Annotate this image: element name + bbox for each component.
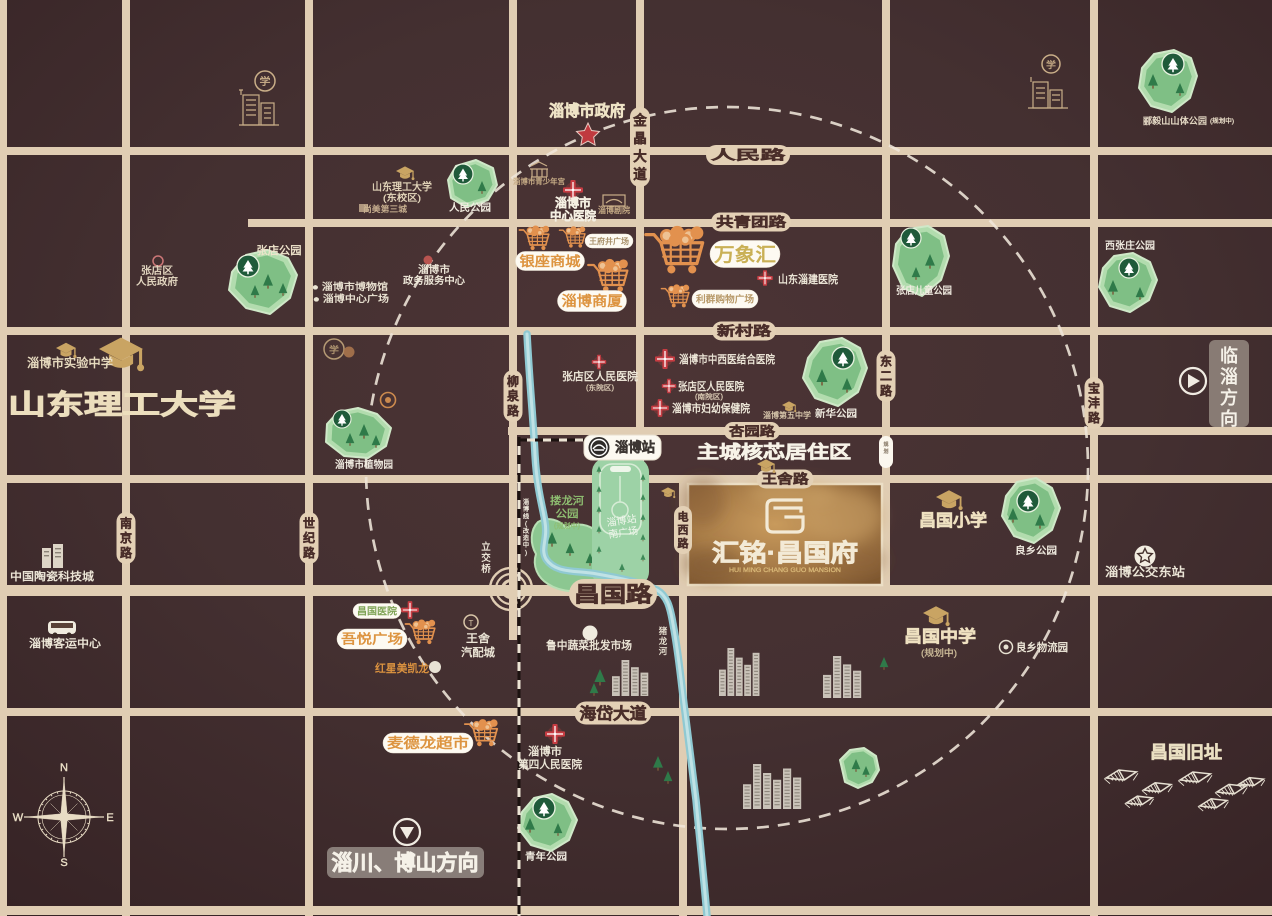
svg-text:新华公园: 新华公园 bbox=[815, 407, 857, 420]
svg-text:昌国旧址: 昌国旧址 bbox=[1150, 743, 1222, 762]
svg-text:王府井广场: 王府井广场 bbox=[589, 236, 629, 246]
svg-text:淄博市青少年宫: 淄博市青少年宫 bbox=[513, 176, 565, 186]
svg-text:公园: 公园 bbox=[556, 508, 579, 520]
svg-text:东二路: 东二路 bbox=[880, 353, 893, 397]
svg-text:中心医院: 中心医院 bbox=[550, 208, 596, 223]
svg-text:HUI MING CHANG GUO MANSION: HUI MING CHANG GUO MANSION bbox=[729, 567, 841, 574]
svg-text:人民路: 人民路 bbox=[711, 148, 787, 163]
svg-text:昌国中学: 昌国中学 bbox=[904, 626, 976, 646]
svg-text:尚美第三城: 尚美第三城 bbox=[363, 204, 408, 214]
svg-text:山东理工大学: 山东理工大学 bbox=[8, 389, 236, 420]
svg-text:张店区人民医院: 张店区人民医院 bbox=[678, 379, 744, 393]
svg-text:张店儿童公园: 张店儿童公园 bbox=[896, 284, 952, 297]
svg-text:鲁中蔬菜批发市场: 鲁中蔬菜批发市场 bbox=[546, 638, 632, 652]
svg-text:学: 学 bbox=[260, 75, 271, 88]
svg-text:(东院区): (东院区) bbox=[586, 383, 614, 392]
svg-text:麦德龙超市: 麦德龙超市 bbox=[387, 735, 469, 751]
svg-text:人民政府: 人民政府 bbox=[136, 275, 178, 288]
svg-text:万象汇: 万象汇 bbox=[713, 243, 776, 266]
svg-text:第四人民医院: 第四人民医院 bbox=[518, 757, 582, 771]
svg-text:共青团路: 共青团路 bbox=[716, 215, 787, 230]
svg-text:人民公园: 人民公园 bbox=[449, 202, 491, 214]
svg-text:南京路: 南京路 bbox=[120, 515, 133, 559]
svg-text:柳泉路: 柳泉路 bbox=[507, 373, 520, 417]
svg-text:● 淄博中心广场: ● 淄博中心广场 bbox=[313, 293, 389, 305]
svg-text:淄博站: 淄博站 bbox=[615, 439, 655, 455]
svg-text:吾悦广场: 吾悦广场 bbox=[341, 632, 403, 647]
svg-text:(南院区): (南院区) bbox=[695, 392, 723, 401]
svg-text:淄博市实验中学: 淄博市实验中学 bbox=[27, 355, 113, 370]
svg-text:淄博商厦: 淄博商厦 bbox=[562, 293, 624, 309]
svg-text:学: 学 bbox=[1046, 59, 1056, 70]
svg-text:电西路: 电西路 bbox=[678, 509, 690, 550]
svg-text:张店区人民医院: 张店区人民医院 bbox=[562, 369, 638, 383]
svg-text:良乡物流园: 良乡物流园 bbox=[1016, 640, 1068, 654]
svg-text:淄博市: 淄博市 bbox=[528, 744, 562, 758]
svg-text:N: N bbox=[60, 762, 68, 774]
svg-text:淄博公交东站: 淄博公交东站 bbox=[1105, 564, 1185, 579]
svg-text:(东校区): (东校区) bbox=[383, 192, 421, 204]
svg-text:昌国小学: 昌国小学 bbox=[919, 510, 987, 530]
svg-text:淄博市植物园: 淄博市植物园 bbox=[335, 458, 393, 471]
svg-text:T: T bbox=[469, 619, 474, 628]
svg-text:宝沣路: 宝沣路 bbox=[1088, 380, 1101, 424]
svg-text:淄博剧院: 淄博剧院 bbox=[598, 205, 630, 215]
svg-text:红星美凯龙: 红星美凯龙 bbox=[375, 662, 429, 675]
svg-text:淄博市政府: 淄博市政府 bbox=[549, 101, 625, 120]
svg-text:淄博市妇幼保健院: 淄博市妇幼保健院 bbox=[672, 401, 750, 415]
svg-text:● 淄博市博物馆: ● 淄博市博物馆 bbox=[312, 281, 388, 293]
svg-text:淄博市: 淄博市 bbox=[555, 195, 591, 210]
svg-text:搂龙河: 搂龙河 bbox=[550, 494, 585, 507]
svg-text:西张庄公园: 西张庄公园 bbox=[1105, 239, 1155, 252]
svg-text:淄川、博山方向: 淄川、博山方向 bbox=[332, 851, 479, 875]
svg-text:E: E bbox=[106, 812, 113, 824]
svg-text:利群购物广场: 利群购物广场 bbox=[695, 293, 755, 305]
svg-text:汇铭·昌国府: 汇铭·昌国府 bbox=[712, 539, 858, 567]
svg-text:中国陶瓷科技城: 中国陶瓷科技城 bbox=[10, 569, 94, 583]
svg-text:王舍路: 王舍路 bbox=[762, 472, 810, 487]
svg-text:郦毅山山体公园: 郦毅山山体公园 bbox=[1143, 115, 1207, 126]
svg-text:银座商城: 银座商城 bbox=[520, 253, 582, 269]
svg-text:世纪路: 世纪路 bbox=[303, 515, 316, 559]
svg-text:山东淄建医院: 山东淄建医院 bbox=[778, 272, 838, 286]
svg-text:猪龙河: 猪龙河 bbox=[659, 626, 668, 656]
svg-text:青年公园: 青年公园 bbox=[525, 850, 567, 863]
svg-text:(规划中): (规划中) bbox=[1210, 117, 1234, 125]
svg-text:良乡公园: 良乡公园 bbox=[1015, 544, 1057, 557]
svg-text:淄博线(改造中): 淄博线(改造中) bbox=[523, 498, 529, 556]
svg-text:主城核芯居住区: 主城核芯居住区 bbox=[697, 442, 851, 462]
svg-text:王舍: 王舍 bbox=[466, 631, 490, 645]
svg-text:张店公园: 张店公园 bbox=[257, 243, 302, 257]
svg-text:昌国医院: 昌国医院 bbox=[357, 605, 398, 617]
svg-text:汽配城: 汽配城 bbox=[461, 645, 495, 659]
svg-text:W: W bbox=[13, 812, 24, 824]
svg-text:淄博第五中学: 淄博第五中学 bbox=[763, 410, 811, 420]
svg-text:淄博市: 淄博市 bbox=[418, 263, 450, 276]
svg-text:昌国路: 昌国路 bbox=[574, 583, 653, 607]
svg-text:立交桥: 立交桥 bbox=[481, 541, 491, 575]
svg-text:山东理工大学: 山东理工大学 bbox=[372, 180, 432, 193]
svg-text:淄博市中西医结合医院: 淄博市中西医结合医院 bbox=[679, 352, 775, 366]
svg-text:(规划中): (规划中) bbox=[554, 521, 580, 530]
svg-text:S: S bbox=[60, 857, 67, 869]
svg-text:杏园路: 杏园路 bbox=[728, 424, 776, 439]
svg-text:海岱大道: 海岱大道 bbox=[580, 704, 647, 723]
svg-text:淄博客运中心: 淄博客运中心 bbox=[29, 636, 101, 650]
svg-text:学: 学 bbox=[329, 344, 339, 355]
svg-text:张店区: 张店区 bbox=[141, 264, 173, 277]
svg-text:政务服务中心: 政务服务中心 bbox=[403, 274, 465, 287]
svg-text:临淄方向: 临淄方向 bbox=[1220, 346, 1238, 429]
svg-text:新村路: 新村路 bbox=[717, 324, 772, 339]
svg-text:(规划中): (规划中) bbox=[921, 647, 957, 658]
